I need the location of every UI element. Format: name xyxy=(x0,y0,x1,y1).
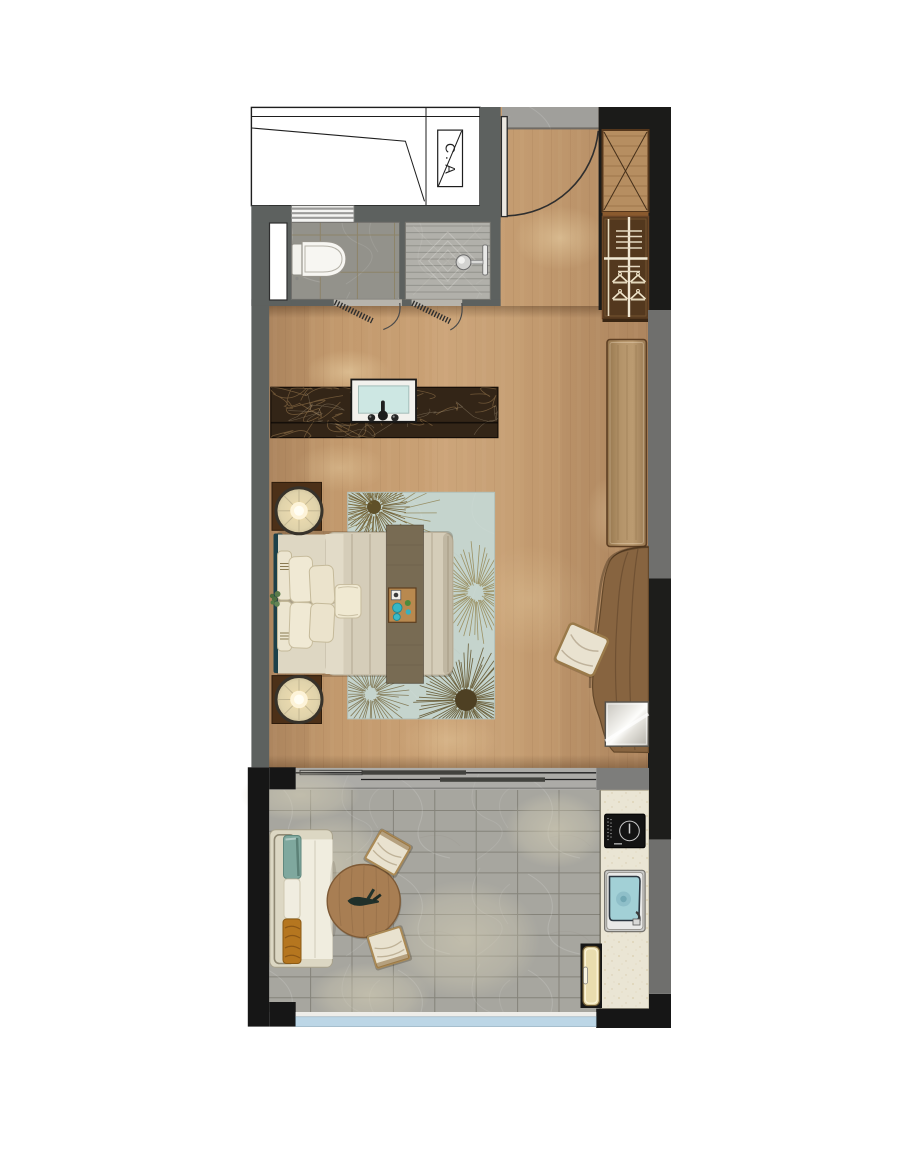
svg-text:C: C xyxy=(443,143,459,153)
svg-text:.: . xyxy=(443,156,459,160)
svg-text:A: A xyxy=(443,164,459,174)
